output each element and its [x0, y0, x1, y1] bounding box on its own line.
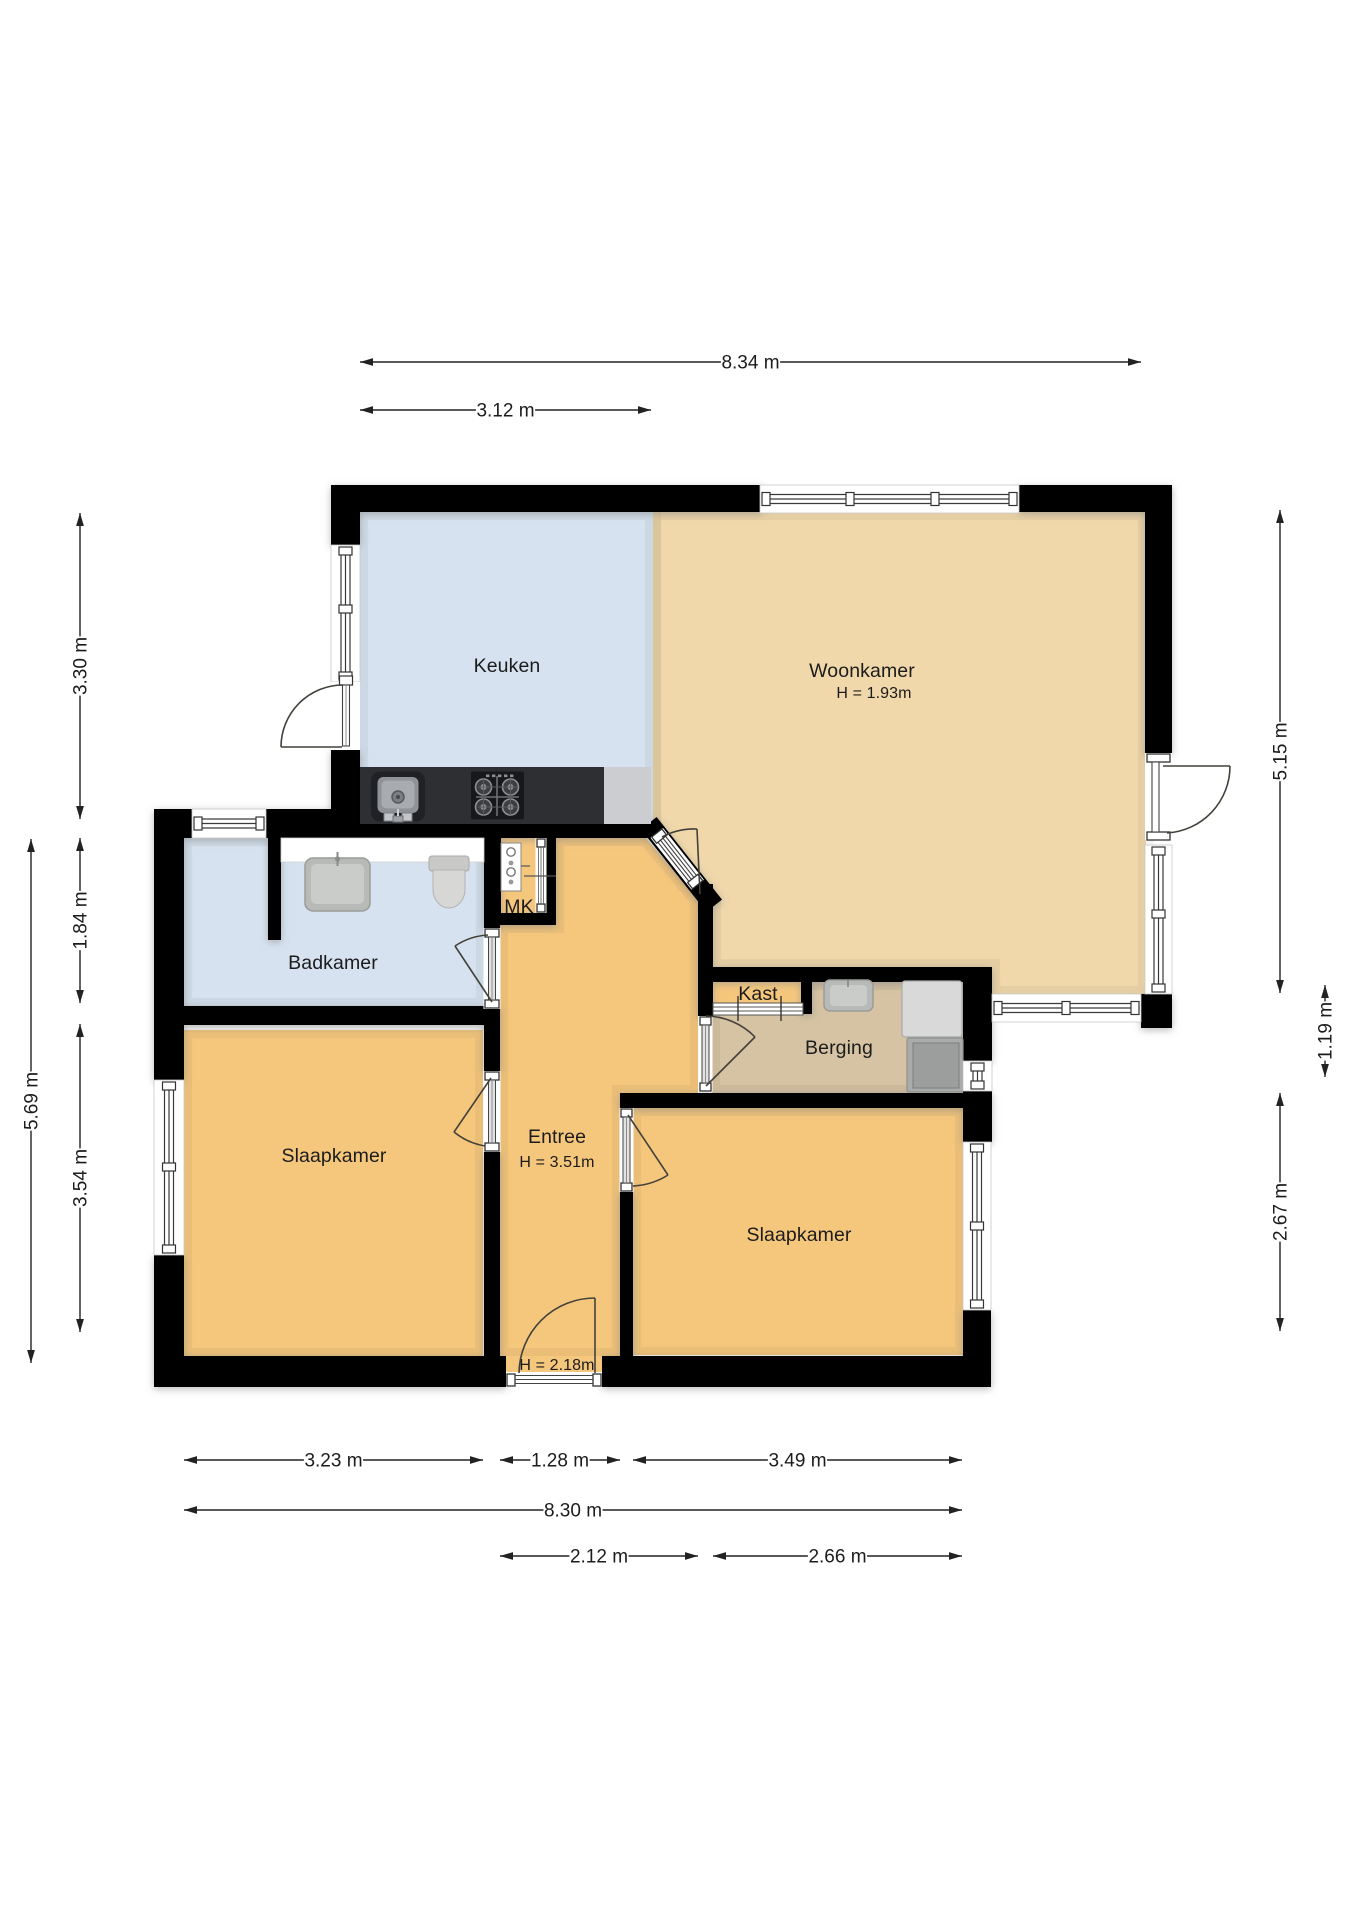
svg-text:3.23 m: 3.23 m: [304, 1451, 362, 1472]
svg-text:3.54 m: 3.54 m: [71, 1149, 92, 1207]
svg-text:MK: MK: [504, 896, 533, 918]
svg-text:1.19 m: 1.19 m: [1316, 1002, 1337, 1060]
svg-text:H = 2.18m: H = 2.18m: [519, 1357, 594, 1374]
svg-text:Badkamer: Badkamer: [288, 952, 378, 974]
svg-text:2.67 m: 2.67 m: [1271, 1183, 1292, 1241]
svg-text:Keuken: Keuken: [474, 655, 541, 677]
svg-text:1.28 m: 1.28 m: [531, 1451, 589, 1472]
svg-text:Berging: Berging: [805, 1037, 873, 1059]
svg-text:Slaapkamer: Slaapkamer: [281, 1145, 386, 1167]
svg-text:2.12 m: 2.12 m: [570, 1547, 628, 1568]
svg-text:3.30 m: 3.30 m: [71, 637, 92, 695]
svg-text:5.69 m: 5.69 m: [22, 1072, 43, 1130]
svg-text:H = 1.93m: H = 1.93m: [836, 685, 911, 702]
svg-text:H = 3.51m: H = 3.51m: [519, 1154, 594, 1171]
svg-text:1.84 m: 1.84 m: [71, 891, 92, 949]
svg-text:3.12 m: 3.12 m: [476, 401, 534, 422]
svg-text:8.30 m: 8.30 m: [544, 1501, 602, 1522]
svg-text:2.66 m: 2.66 m: [808, 1547, 866, 1568]
svg-text:5.15 m: 5.15 m: [1271, 722, 1292, 780]
svg-text:Slaapkamer: Slaapkamer: [746, 1224, 851, 1246]
svg-text:Woonkamer: Woonkamer: [809, 660, 915, 682]
svg-text:3.49 m: 3.49 m: [768, 1451, 826, 1472]
svg-text:Entree: Entree: [528, 1126, 586, 1148]
svg-text:Kast: Kast: [738, 983, 778, 1005]
svg-text:8.34 m: 8.34 m: [721, 353, 779, 374]
